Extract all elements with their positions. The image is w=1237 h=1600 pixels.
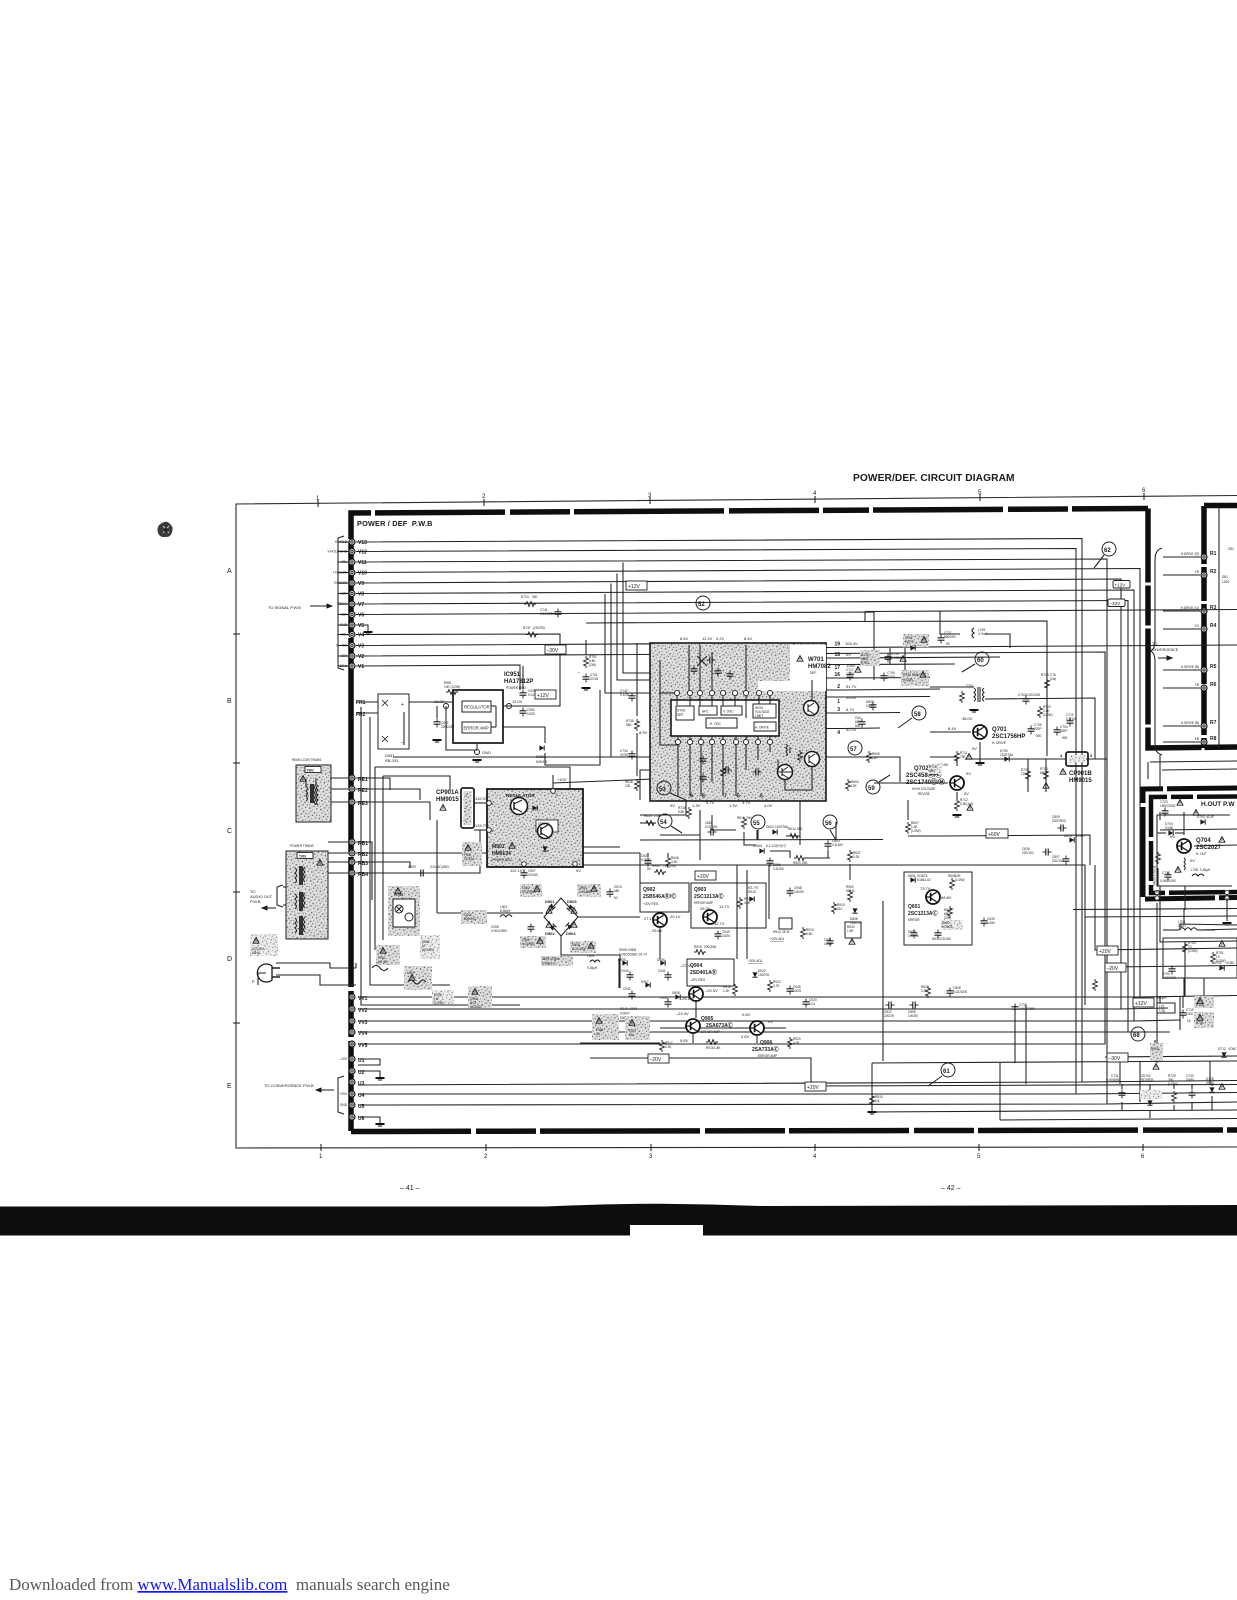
svg-text:820P: 820P xyxy=(1060,729,1067,733)
svg-text:4.7mH: 4.7mH xyxy=(978,632,988,636)
svg-text:2: 2 xyxy=(837,684,840,690)
svg-text:55: 55 xyxy=(753,821,760,827)
svg-text:+20V ADJ: +20V ADJ xyxy=(748,959,763,963)
svg-text:0V: 0V xyxy=(964,791,969,796)
svg-text:1.2K: 1.2K xyxy=(723,989,730,993)
svg-text:60Hz: 60Hz xyxy=(252,951,260,955)
svg-text:VO6C: VO6C xyxy=(1206,1081,1215,1085)
svg-text:GND: GND xyxy=(340,1103,348,1107)
svg-text:Q904: Q904 xyxy=(690,963,702,969)
svg-text:0.6V: 0.6V xyxy=(742,1012,751,1017)
svg-text:6.7V: 6.7V xyxy=(846,707,855,712)
svg-text:D: D xyxy=(227,956,232,963)
svg-text:R8: R8 xyxy=(1210,736,1217,742)
svg-text:68: 68 xyxy=(1133,1033,1140,1039)
svg-text:– 42 –: – 42 – xyxy=(941,1185,961,1192)
svg-text:D902: D902 xyxy=(545,931,555,936)
svg-text:1S20: 1S20 xyxy=(1222,580,1230,584)
svg-text:0.0033: 0.0033 xyxy=(641,858,651,862)
svg-text:220P: 220P xyxy=(1034,727,1041,731)
svg-text:R767: R767 xyxy=(861,661,869,665)
svg-text:38.0V: 38.0V xyxy=(962,716,973,721)
svg-text:2SC1213AⒸ: 2SC1213AⒸ xyxy=(908,910,937,917)
svg-text:V10: V10 xyxy=(358,571,367,577)
svg-text:(1/2W): (1/2W) xyxy=(903,678,913,682)
svg-text:–30V: –30V xyxy=(1109,1056,1121,1062)
svg-text:W04B: W04B xyxy=(536,759,547,764)
svg-text:RD39EB: RD39EB xyxy=(1141,1078,1153,1082)
svg-text:H.DRIVE (B): H.DRIVE (B) xyxy=(1181,665,1199,669)
svg-text:D907: D907 xyxy=(641,980,649,984)
svg-text:61: 61 xyxy=(943,1069,950,1075)
svg-text:HM9015: HM9015 xyxy=(1069,778,1092,784)
svg-text:134.7V: 134.7V xyxy=(475,823,488,828)
svg-text:–20V: –20V xyxy=(650,1057,662,1063)
svg-text:18.2V: 18.2V xyxy=(434,699,445,704)
svg-text:POWER/DEF. CIRCUIT DIAGRAM: POWER/DEF. CIRCUIT DIAGRAM xyxy=(853,473,1015,484)
svg-text:51.7V: 51.7V xyxy=(846,684,857,689)
svg-text:1: 1 xyxy=(492,802,494,806)
svg-text:4.7/200: 4.7/200 xyxy=(891,656,902,660)
svg-text:SEP: SEP xyxy=(677,713,683,717)
svg-text:+10V: +10V xyxy=(557,777,567,782)
svg-text:100/50: 100/50 xyxy=(794,890,804,894)
svg-text:500: 500 xyxy=(855,724,861,728)
svg-text:V4: V4 xyxy=(358,633,364,639)
svg-text:AC250V: AC250V xyxy=(422,948,435,952)
svg-text:0.8: 0.8 xyxy=(875,1099,880,1103)
svg-text:(2K07B): (2K07B) xyxy=(533,626,545,630)
svg-text:OCL3A: OCL3A xyxy=(464,857,475,861)
svg-text:4.7K: 4.7K xyxy=(793,1041,800,1045)
svg-text:1S2076A: 1S2076A xyxy=(1000,753,1014,757)
svg-text:HM9015: HM9015 xyxy=(436,797,459,803)
svg-text:10/25: 10/25 xyxy=(722,934,730,938)
svg-text:6.2-12Ⓜ/Ⓞ/Ⓒ: 6.2-12Ⓜ/Ⓞ/Ⓒ xyxy=(766,843,787,848)
svg-text:U3: U3 xyxy=(358,1081,365,1087)
svg-text:R714: R714 xyxy=(521,595,529,599)
svg-text:2200/25: 2200/25 xyxy=(441,725,453,729)
svg-text:5.6K: 5.6K xyxy=(678,810,685,814)
svg-text:220P/500: 220P/500 xyxy=(1052,819,1066,823)
svg-text:+20V: +20V xyxy=(339,1092,347,1096)
svg-text:D905: D905 xyxy=(618,958,626,962)
svg-text:VO8C: VO8C xyxy=(1226,961,1235,965)
svg-text:3.3/160: 3.3/160 xyxy=(940,937,951,941)
svg-text:C81: C81 xyxy=(1228,547,1234,551)
svg-text:D610: D610 xyxy=(932,937,940,941)
svg-text:–32V: –32V xyxy=(1110,601,1122,606)
svg-text:–20.3V: –20.3V xyxy=(705,988,718,993)
svg-text:0.068/1000: 0.068/1000 xyxy=(1160,879,1176,883)
svg-text:V1: V1 xyxy=(358,664,364,670)
svg-text:3: 3 xyxy=(519,858,521,862)
svg-text:+20V REG: +20V REG xyxy=(643,902,659,906)
svg-text:24K: 24K xyxy=(802,861,809,865)
svg-text:–20V: –20V xyxy=(340,1057,348,1061)
svg-text:3.3K: 3.3K xyxy=(671,860,678,864)
svg-text:Q704: Q704 xyxy=(1196,838,1211,844)
svg-text:R737: R737 xyxy=(523,626,531,630)
svg-text:25.6V: 25.6V xyxy=(652,928,663,933)
svg-text:K1: K1 xyxy=(1156,889,1162,894)
svg-text:9: 9 xyxy=(690,794,693,800)
svg-text:12.0V: 12.0V xyxy=(512,699,523,704)
svg-text:D81: D81 xyxy=(1222,575,1228,579)
svg-text:D908: D908 xyxy=(672,991,680,995)
svg-text:(1/2W): (1/2W) xyxy=(1043,713,1053,717)
svg-text:1.5K: 1.5K xyxy=(847,929,854,933)
svg-text:+12V: +12V xyxy=(628,584,640,590)
svg-text:V. OSC: V. OSC xyxy=(723,710,734,714)
svg-text:V5: V5 xyxy=(358,623,364,629)
svg-text:560: 560 xyxy=(797,827,803,831)
svg-text:D603: D603 xyxy=(766,825,774,829)
svg-text:132.0V: 132.0V xyxy=(475,796,488,801)
svg-text:C940~C943: C940~C943 xyxy=(620,1007,637,1011)
svg-text:0.01(AC)/50V: 0.01(AC)/50V xyxy=(430,865,450,869)
svg-text:R5: R5 xyxy=(1210,664,1217,670)
svg-text:W701: W701 xyxy=(808,657,824,663)
svg-text:40-3F: 40-3F xyxy=(1206,815,1214,819)
svg-text:Q905: Q905 xyxy=(701,1016,713,1022)
svg-text:(2W): (2W) xyxy=(589,663,596,667)
svg-text:R603: R603 xyxy=(793,861,801,865)
svg-text:4.7V: 4.7V xyxy=(706,800,715,805)
svg-text:C941: C941 xyxy=(658,969,666,973)
svg-text:HIGH VOLTAGE: HIGH VOLTAGE xyxy=(912,787,935,791)
svg-text:D903: D903 xyxy=(567,899,577,904)
svg-text:L904: L904 xyxy=(587,954,594,958)
svg-text:2SA673AⒸ: 2SA673AⒸ xyxy=(706,1022,733,1029)
svg-text:D712: D712 xyxy=(1218,1047,1226,1051)
svg-text:C714: C714 xyxy=(1162,871,1170,875)
svg-text:V3: V3 xyxy=(358,644,364,650)
svg-text:+: + xyxy=(401,702,404,708)
svg-text:RB-151: RB-151 xyxy=(385,758,399,763)
svg-text:0.022/200: 0.022/200 xyxy=(953,990,967,994)
svg-text:LIMIT: LIMIT xyxy=(755,714,763,718)
svg-text:0.01: 0.01 xyxy=(809,1002,815,1006)
svg-text:DEF.: DEF. xyxy=(810,671,817,675)
svg-text:10/25: 10/25 xyxy=(793,989,801,993)
svg-text:AC250V: AC250V xyxy=(470,1005,483,1009)
svg-text:60: 60 xyxy=(977,658,984,664)
svg-text:8.6V: 8.6V xyxy=(680,636,689,641)
svg-text:0.022/50: 0.022/50 xyxy=(705,825,718,829)
svg-text:–: – xyxy=(401,740,404,746)
svg-text:REVISE: REVISE xyxy=(918,792,930,796)
svg-text:M901: M901 xyxy=(492,844,505,850)
svg-text:100/50: 100/50 xyxy=(908,1014,918,1018)
svg-text:0.01/500: 0.01/500 xyxy=(522,942,535,946)
svg-text:D904: D904 xyxy=(566,931,576,936)
svg-text:0.01/500: 0.01/500 xyxy=(579,890,592,894)
svg-text:10/25: 10/25 xyxy=(846,672,854,676)
svg-text:CONVERGENCE: CONVERGENCE xyxy=(1150,648,1179,652)
svg-text:V19E/1.5: V19E/1.5 xyxy=(542,962,555,966)
svg-text:500: 500 xyxy=(620,1016,626,1020)
svg-text:0.35µH: 0.35µH xyxy=(587,966,598,970)
svg-text:H. OSC: H. OSC xyxy=(710,722,722,726)
svg-text:(1/2W): (1/2W) xyxy=(434,1001,444,1005)
svg-text:56K: 56K xyxy=(626,723,633,727)
svg-text:47/16: 47/16 xyxy=(590,677,598,681)
svg-text:R6: R6 xyxy=(1210,682,1217,688)
svg-text:2SC1756HP: 2SC1756HP xyxy=(992,734,1025,740)
svg-text:120 (2W): 120 (2W) xyxy=(663,864,676,868)
svg-text:POWER REG: POWER REG xyxy=(492,858,512,862)
svg-text:C703: C703 xyxy=(1018,693,1026,697)
svg-text:0.0047: 0.0047 xyxy=(620,1012,630,1016)
svg-text:H. DRIVE: H. DRIVE xyxy=(755,726,769,730)
svg-text:T902: T902 xyxy=(307,769,314,773)
svg-text:V6: V6 xyxy=(358,613,364,619)
svg-text:58: 58 xyxy=(914,712,921,718)
svg-text:680K: 680K xyxy=(1040,771,1048,775)
svg-text:12K: 12K xyxy=(851,784,858,788)
svg-text:E: E xyxy=(227,1083,232,1090)
svg-text:(1/2W): (1/2W) xyxy=(955,878,965,882)
svg-text:22/160: 22/160 xyxy=(528,873,538,877)
svg-text:500: 500 xyxy=(1036,734,1042,738)
svg-text:10K (1/2W): 10K (1/2W) xyxy=(444,685,460,689)
svg-text:50: 50 xyxy=(647,867,651,871)
svg-text:68K: 68K xyxy=(929,769,936,773)
svg-text:(1/2W): (1/2W) xyxy=(1188,949,1198,953)
svg-text:–24.4V: –24.4V xyxy=(676,1011,689,1016)
svg-text:R616: R616 xyxy=(737,816,745,820)
svg-text:3.3K: 3.3K xyxy=(921,989,928,993)
svg-text:C940: C940 xyxy=(621,969,629,973)
svg-text:240K: 240K xyxy=(912,673,920,677)
svg-text:0V: 0V xyxy=(1170,834,1175,839)
svg-text:+12V: +12V xyxy=(1115,583,1127,588)
svg-text:220/100: 220/100 xyxy=(1022,851,1034,855)
svg-text:7: 7 xyxy=(724,794,727,800)
svg-text:R1: R1 xyxy=(1210,551,1217,557)
svg-text:1: 1 xyxy=(837,699,840,705)
svg-text:–20V: –20V xyxy=(1107,966,1119,972)
svg-text:12K: 12K xyxy=(1021,772,1028,776)
svg-text:104.4V: 104.4V xyxy=(845,641,858,646)
svg-text:200(3W): 200(3W) xyxy=(704,945,716,949)
svg-text:R7: R7 xyxy=(1210,720,1217,726)
svg-text:AC 8A: AC 8A xyxy=(378,960,388,964)
svg-text:8.9V: 8.9V xyxy=(639,730,648,735)
svg-text:HZ-7Ⓡ: HZ-7Ⓡ xyxy=(748,885,759,890)
svg-text:0.2V: 0.2V xyxy=(716,636,725,641)
svg-text:1/160: 1/160 xyxy=(987,921,995,925)
svg-text:130: 130 xyxy=(625,784,631,788)
svg-text:1S2076A: 1S2076A xyxy=(775,825,789,829)
svg-text:10/25: 10/25 xyxy=(527,712,535,716)
svg-text:16: 16 xyxy=(1187,1019,1191,1023)
svg-text:220/100: 220/100 xyxy=(1052,859,1064,863)
svg-text:YB: YB xyxy=(1195,683,1199,687)
svg-text:–20V REG: –20V REG xyxy=(690,978,706,982)
svg-text:AFC: AFC xyxy=(702,710,709,714)
svg-text:5600/50: 5600/50 xyxy=(944,635,956,639)
svg-text:54: 54 xyxy=(660,820,667,826)
svg-text:0V: 0V xyxy=(576,868,581,873)
svg-text:4.0V: 4.0V xyxy=(764,803,773,808)
svg-text:V2: V2 xyxy=(358,654,364,660)
svg-text:5.6V: 5.6V xyxy=(680,1038,689,1043)
svg-text:S1861-02: S1861-02 xyxy=(917,878,931,882)
svg-text:+12V: +12V xyxy=(537,693,549,699)
svg-text:D901~D904: D901~D904 xyxy=(542,957,559,961)
svg-text:A: A xyxy=(227,568,232,575)
svg-text:2SA733AⒸ: 2SA733AⒸ xyxy=(752,1046,779,1053)
svg-text:8: 8 xyxy=(702,794,705,800)
svg-text:330: 330 xyxy=(532,595,538,599)
svg-text:H. DRIVE: H. DRIVE xyxy=(992,741,1006,745)
svg-text:D604: D604 xyxy=(1064,834,1072,838)
svg-text:2.2K: 2.2K xyxy=(665,1045,672,1049)
svg-text:V12: V12 xyxy=(358,550,367,556)
svg-text:3: 3 xyxy=(837,707,840,713)
svg-text:180P/2000: 180P/2000 xyxy=(1160,804,1176,808)
svg-text:3: 3 xyxy=(465,794,467,798)
svg-text:D906: D906 xyxy=(657,958,665,962)
svg-text:Q906: Q906 xyxy=(760,1040,772,1046)
svg-text:+: + xyxy=(578,671,580,675)
svg-text:V13: V13 xyxy=(358,540,367,546)
svg-text:+20V: +20V xyxy=(697,874,709,880)
svg-text:0V: 0V xyxy=(1190,858,1195,863)
svg-text:0.022/300: 0.022/300 xyxy=(1162,976,1176,980)
svg-text:2: 2 xyxy=(492,829,494,833)
svg-text:R909: R909 xyxy=(652,864,660,868)
svg-text:10/20: 10/20 xyxy=(866,704,874,708)
svg-text:2SC1213AⒸ: 2SC1213AⒸ xyxy=(694,893,723,900)
svg-text:R615: R615 xyxy=(1151,1047,1159,1051)
svg-text:R752 1.5(2W): R752 1.5(2W) xyxy=(1152,866,1156,886)
svg-text:0V: 0V xyxy=(670,803,675,808)
svg-text:3.3/160: 3.3/160 xyxy=(773,867,784,871)
svg-text:5: 5 xyxy=(760,794,763,800)
svg-text:1: 1 xyxy=(465,819,467,823)
svg-text:Downloaded from www.Manualslib: Downloaded from www.Manualslib.com manua… xyxy=(9,1575,450,1594)
svg-text:52: 52 xyxy=(698,602,705,608)
svg-text:Q701: Q701 xyxy=(992,727,1007,733)
svg-text:ERROR AMP: ERROR AMP xyxy=(694,901,713,905)
svg-text:V7: V7 xyxy=(358,602,364,608)
svg-text:57: 57 xyxy=(850,747,857,753)
svg-text:0.0068/50: 0.0068/50 xyxy=(1106,1078,1120,1082)
svg-text:CP901A: CP901A xyxy=(436,790,459,796)
svg-text:47/25: 47/25 xyxy=(620,753,628,757)
svg-text:1.3V: 1.3V xyxy=(692,803,701,808)
svg-text:–26.6V: –26.6V xyxy=(680,996,693,1001)
svg-text:Q902: Q902 xyxy=(643,887,655,893)
svg-text:Q903: Q903 xyxy=(694,887,706,893)
svg-text:0.1/25: 0.1/25 xyxy=(620,693,629,697)
svg-text:POWER REG: POWER REG xyxy=(506,686,526,690)
svg-text:(1/2W): (1/2W) xyxy=(1168,1082,1178,1086)
svg-text:13.7V: 13.7V xyxy=(719,904,730,909)
svg-text:H.DRIVE (R): H.DRIVE (R) xyxy=(1181,552,1199,556)
svg-text:0V: 0V xyxy=(966,771,971,776)
svg-text:220/25: 220/25 xyxy=(884,1014,894,1018)
svg-text:350µH: 350µH xyxy=(1157,996,1167,1000)
svg-text:(1/2W): (1/2W) xyxy=(911,829,921,833)
svg-text:ERROR AMP: ERROR AMP xyxy=(758,1054,777,1058)
svg-text:ERROR AMP: ERROR AMP xyxy=(464,726,489,731)
svg-text:VO6C5: VO6C5 xyxy=(942,925,953,929)
svg-text:3.3K(1/4): 3.3K(1/4) xyxy=(960,802,973,806)
svg-text:2K-B: 2K-B xyxy=(782,930,789,934)
svg-text:C942: C942 xyxy=(623,987,631,991)
svg-text:L708: L708 xyxy=(1191,868,1198,872)
svg-text:POWER / DEF P.W.B: POWER / DEF P.W.B xyxy=(357,519,433,528)
svg-text:H. OUT: H. OUT xyxy=(1196,852,1207,856)
svg-text:0.6V: 0.6V xyxy=(741,1034,750,1039)
svg-text:24K: 24K xyxy=(746,816,753,820)
svg-text:V9: V9 xyxy=(358,581,364,587)
svg-text:68.8V: 68.8V xyxy=(941,895,952,900)
svg-text:2SC1740Ⓞ/Ⓜ: 2SC1740Ⓞ/Ⓜ xyxy=(906,778,945,786)
svg-text:3.3/160: 3.3/160 xyxy=(908,934,919,938)
svg-text:19: 19 xyxy=(834,642,840,648)
svg-text:Q601: Q601 xyxy=(908,904,920,910)
svg-text:R614: R614 xyxy=(788,827,796,831)
svg-text:26.3V: 26.3V xyxy=(700,906,711,911)
svg-text:12.7V: 12.7V xyxy=(714,921,725,926)
svg-text:22/25: 22/25 xyxy=(887,675,895,679)
svg-text:3.9K: 3.9K xyxy=(744,901,751,905)
svg-text:25.3V: 25.3V xyxy=(846,695,857,700)
svg-text:HA17812P: HA17812P xyxy=(504,679,533,685)
svg-text:8.4V: 8.4V xyxy=(948,726,957,731)
svg-text:560-B: 560-B xyxy=(846,889,855,893)
svg-text:YG: YG xyxy=(1194,624,1199,628)
svg-text:R4: R4 xyxy=(1210,623,1217,629)
svg-text:L902: L902 xyxy=(407,971,414,975)
svg-text:R914: R914 xyxy=(773,930,781,934)
svg-text:VO6C: VO6C xyxy=(1228,1047,1237,1051)
svg-text:D702: D702 xyxy=(1214,961,1222,965)
svg-text:VO8C: VO8C xyxy=(1076,834,1085,838)
svg-text:820/200: 820/200 xyxy=(464,917,476,921)
svg-text:C909: C909 xyxy=(408,865,416,869)
svg-text:V8: V8 xyxy=(358,592,364,598)
svg-text:680: 680 xyxy=(614,889,620,893)
svg-text:20.1V: 20.1V xyxy=(670,914,681,919)
svg-text:10/25: 10/25 xyxy=(824,942,832,946)
svg-text:33/50: 33/50 xyxy=(1186,1078,1194,1082)
svg-text:–30V: –30V xyxy=(547,648,559,654)
svg-text:0.01/1000: 0.01/1000 xyxy=(572,947,586,951)
svg-text:D905~D908: D905~D908 xyxy=(619,948,636,952)
svg-text:R748: R748 xyxy=(1196,1003,1204,1007)
svg-text:YEPS: YEPS xyxy=(905,640,914,644)
svg-text:REMO-CON TRANS: REMO-CON TRANS xyxy=(292,758,321,762)
svg-text:2: 2 xyxy=(465,806,467,810)
svg-text:2SD401AⓇ: 2SD401AⓇ xyxy=(690,969,717,976)
svg-text:+60V: +60V xyxy=(988,832,1000,838)
svg-text:1000: 1000 xyxy=(1186,1012,1193,1016)
svg-text:REGULATOR: REGULATOR xyxy=(464,705,490,710)
svg-text:0.0015/50: 0.0015/50 xyxy=(540,612,554,616)
svg-text:R916: R916 xyxy=(706,1046,714,1050)
svg-text:12.2V: 12.2V xyxy=(702,636,713,641)
svg-text:79K: 79K xyxy=(960,755,967,759)
svg-text:17: 17 xyxy=(834,665,840,671)
svg-text:4: 4 xyxy=(837,730,840,736)
svg-text:+20V: +20V xyxy=(1099,949,1111,955)
